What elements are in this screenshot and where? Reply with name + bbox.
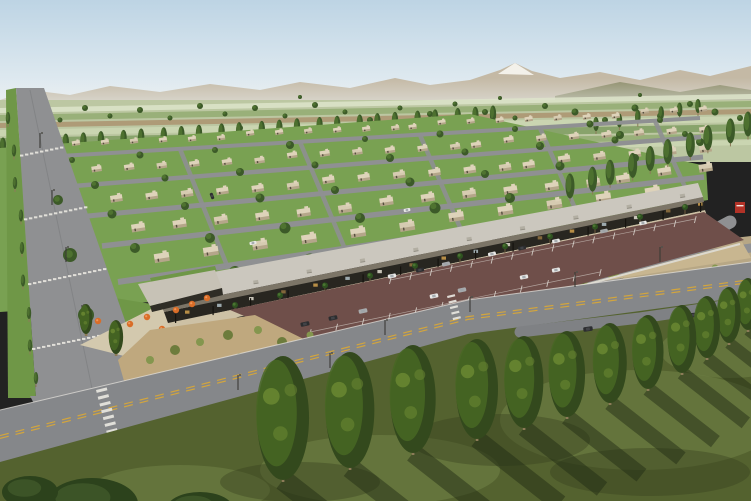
house-tower [457, 209, 462, 214]
patio-umbrella-top [145, 315, 147, 317]
house-tower [325, 149, 328, 152]
yard-tree-highlight [108, 210, 113, 215]
canopy-column [400, 266, 401, 275]
yard-tree-highlight [256, 194, 261, 199]
crosswalk-bar [63, 276, 66, 278]
foreground-tree-light [469, 396, 481, 408]
house-tower [604, 191, 609, 196]
crosswalk-bar [72, 340, 75, 342]
crosswalk-bar [74, 208, 77, 210]
field-tree-highlight [498, 96, 500, 98]
foreground-tree-light [697, 312, 705, 320]
storefront-window [570, 230, 575, 233]
field-tree-highlight [737, 115, 740, 118]
house-tower [476, 140, 479, 143]
poplar-highlight [12, 145, 15, 153]
foreground-tree-mid [548, 334, 576, 408]
palm-highlight [368, 273, 371, 276]
canopy-column [513, 243, 514, 252]
crosswalk-bar [39, 215, 42, 217]
house-tower [279, 128, 282, 131]
house-tower [470, 187, 474, 191]
field-tree-highlight [427, 111, 430, 114]
canopy-column [213, 306, 214, 315]
house-tower [260, 156, 263, 159]
house-tower [408, 219, 413, 224]
crosswalk-bar [67, 341, 70, 343]
foreground-tree-light [677, 344, 685, 352]
crosswalk-bar [69, 209, 72, 211]
field-tree-highlight [312, 102, 315, 105]
crosswalk-bar [93, 270, 96, 272]
poplar-highlight [21, 275, 24, 283]
house-door [506, 140, 508, 142]
streetlight-head [471, 296, 473, 298]
yard-tree-highlight [387, 154, 391, 158]
storefront-window [442, 257, 447, 260]
palm-highlight [638, 215, 641, 218]
palm-highlight [503, 244, 506, 247]
foreground-tree-light [351, 378, 363, 390]
field-tree-highlight [252, 105, 255, 108]
poplar-highlight [28, 340, 31, 348]
yard-tree-highlight [437, 131, 441, 135]
yard-tree-highlight [587, 121, 591, 125]
foreground-tree-light [708, 310, 714, 316]
yard-tree-highlight [482, 170, 486, 174]
foreground-tree-light [81, 312, 85, 316]
canopy-column [663, 211, 664, 220]
canopy-column [475, 251, 476, 260]
foreground-tree-light [636, 334, 646, 344]
foreground-tree-light [604, 368, 613, 377]
foreground-tree-light [331, 382, 347, 398]
house-tower [600, 151, 604, 155]
poplar-highlight [744, 113, 749, 131]
crosswalk-bar [25, 154, 28, 156]
house-tower [639, 128, 642, 131]
house-tower [387, 195, 391, 199]
house-door [190, 139, 192, 141]
crosswalk-bar [20, 155, 23, 157]
yard-tree-highlight [512, 126, 515, 129]
house-tower [195, 159, 198, 162]
house-tower [529, 115, 532, 118]
house-tower [653, 184, 658, 189]
crosswalk-bar [40, 151, 43, 153]
streetlight-head [661, 246, 663, 248]
crosswalk-bar [33, 282, 36, 284]
foreground-tree-light [396, 373, 411, 388]
house-tower [442, 118, 445, 121]
foreground-tree-light [517, 388, 528, 399]
house-tower [423, 144, 426, 147]
foreground-tree-light [560, 380, 570, 390]
house-tower [413, 123, 416, 126]
house-door [289, 156, 291, 158]
field-tree-highlight [617, 132, 621, 136]
foreground-tree-light [553, 353, 565, 365]
yard-tree-highlight [356, 214, 362, 220]
canopy-column [625, 219, 626, 228]
house-tower [346, 202, 350, 206]
house-tower [674, 106, 677, 109]
poplar-highlight [664, 140, 669, 158]
house-door [387, 151, 389, 153]
yard-tree-highlight [462, 149, 466, 153]
garden-shrub [170, 345, 180, 355]
house-tower [187, 188, 191, 192]
house-door [322, 154, 324, 156]
crosswalk-bar [50, 149, 53, 151]
house-door [393, 128, 395, 130]
foreground-tree-light [730, 300, 736, 306]
house-tower [509, 135, 512, 138]
storefront-window [217, 304, 222, 307]
foreground-tree-light [478, 361, 488, 371]
house-door [103, 143, 105, 145]
storefront-window [313, 284, 318, 287]
house-tower [635, 148, 639, 152]
storefront-window [345, 277, 350, 280]
house-tower [250, 129, 253, 132]
house-door [643, 112, 645, 114]
monument-sign-text-band [737, 205, 744, 206]
house-tower [529, 159, 533, 163]
crosswalk-bar [73, 274, 76, 276]
canopy-column [700, 203, 701, 212]
patio-umbrella-top [205, 296, 207, 298]
yard-tree-highlight [162, 175, 166, 179]
crosswalk-bar [37, 347, 40, 349]
poplar-highlight [20, 243, 23, 251]
yard-tree-highlight [212, 147, 215, 150]
poplar-highlight [34, 373, 37, 381]
patio-umbrella [189, 301, 195, 307]
yard-tree-highlight [506, 194, 512, 200]
yard-tree-highlight [612, 137, 616, 141]
field-tree-highlight [108, 114, 111, 117]
corner-canopy-highlight [8, 479, 42, 497]
palm-highlight [593, 224, 596, 227]
canopy-column [175, 314, 176, 323]
house-tower [665, 165, 669, 169]
patio-umbrella-top [190, 302, 192, 304]
crosswalk-bar [87, 337, 90, 339]
crosswalk-bar [30, 153, 33, 155]
foreground-tree-light [404, 406, 417, 419]
house-tower [359, 225, 364, 230]
crosswalk-bar [53, 278, 56, 280]
yard-tree-highlight [430, 203, 436, 209]
crosswalk-bar [60, 147, 63, 149]
house-tower [558, 114, 561, 117]
house-door [473, 146, 475, 148]
field-tree-highlight [367, 117, 370, 120]
aerial-rendering [0, 0, 751, 501]
field-tree-highlight [223, 112, 226, 115]
house-tower [364, 172, 368, 176]
storefront-window [666, 209, 671, 212]
crosswalk-bar [48, 279, 51, 281]
field-tree-highlight [298, 95, 300, 97]
house-tower [587, 113, 590, 116]
house-door [538, 139, 540, 141]
house-tower [607, 130, 610, 133]
crosswalk-bar [77, 339, 80, 341]
field-tree-highlight [168, 116, 171, 119]
foreground-tree-mid [109, 321, 120, 350]
field-tree-highlight [602, 117, 605, 120]
foreground-tree-mid [256, 360, 297, 467]
house-door [306, 132, 308, 134]
foreground-tree-mid [80, 305, 90, 331]
streetlight-head [41, 132, 43, 134]
crosswalk-bar [54, 212, 57, 214]
house-door [672, 111, 674, 113]
streetlight-head [331, 352, 333, 354]
streetlight-head [239, 374, 241, 376]
palm-highlight [323, 283, 326, 286]
monument-sign [735, 202, 745, 213]
patio-umbrella-top [128, 322, 130, 324]
patio-umbrella [173, 307, 179, 313]
field-tree-highlight [542, 103, 545, 106]
yard-tree-highlight [69, 157, 72, 160]
house-door [277, 133, 279, 135]
foreground-tree-mid [390, 348, 425, 441]
streetlight-head [53, 189, 55, 191]
foreground-tree-mid [667, 307, 689, 365]
house-tower [105, 138, 108, 141]
house-door [354, 152, 356, 154]
yard-tree-highlight [137, 152, 141, 156]
house-tower [542, 133, 545, 136]
poplar-highlight [490, 106, 494, 118]
crosswalk-bar [32, 348, 35, 350]
poplar-highlight [695, 100, 698, 110]
house-tower [263, 210, 267, 214]
crosswalk-bar [64, 210, 67, 212]
house-tower [574, 132, 577, 135]
foreground-tree-light [525, 357, 534, 366]
storefront-window [249, 297, 254, 300]
palm-highlight [278, 293, 281, 296]
house-tower [227, 157, 230, 160]
house-door [248, 134, 250, 136]
house-tower [456, 142, 459, 145]
house-tower [672, 126, 675, 129]
house-door [224, 163, 226, 165]
foreground-tree-light [285, 384, 297, 396]
foreground-tree-light [702, 331, 709, 338]
field-tree-highlight [398, 106, 401, 109]
house-door [526, 120, 528, 122]
house-tower [366, 125, 369, 128]
foreground-tree-mid [504, 339, 534, 418]
house-door [452, 147, 454, 149]
house-tower [329, 174, 333, 178]
patio-umbrella [95, 318, 101, 324]
foreground-tree-light [568, 350, 577, 359]
poplar-highlight [27, 308, 30, 316]
yard-tree-highlight [131, 244, 137, 250]
median-tree-highlight [54, 196, 60, 202]
storefront-window [185, 311, 190, 314]
poplar-highlight [635, 111, 638, 121]
streetlight-head [576, 271, 578, 273]
yard-tree-highlight [287, 141, 291, 145]
crosswalk-bar [83, 272, 86, 274]
foreground-tree-light [116, 328, 119, 331]
poplar-highlight [726, 120, 731, 138]
foreground-tree-light [113, 339, 117, 343]
poplar-highlight [646, 147, 651, 165]
house-tower [211, 244, 216, 249]
foreground-tree-light [611, 341, 619, 349]
palm-highlight [548, 234, 551, 237]
house-door [669, 132, 671, 134]
house-tower [192, 135, 195, 138]
foreground-tree-mid [694, 298, 714, 351]
foreground-tree-light [509, 360, 521, 372]
house-door [74, 144, 76, 146]
crosswalk-bar [78, 273, 81, 275]
foreground-tree-light [740, 291, 747, 298]
poplar-highlight [589, 168, 594, 186]
house-tower [258, 183, 262, 187]
yard-tree-highlight [406, 178, 411, 183]
house-tower [130, 162, 133, 165]
foreground-tree-light [414, 369, 425, 380]
house-tower [470, 164, 474, 168]
foreground-tree-light [744, 307, 750, 313]
foreground-tree-light [84, 321, 88, 325]
crosswalk-bar [35, 152, 38, 154]
crosswalk-bar [55, 148, 58, 150]
house-tower [555, 197, 560, 202]
house-door [161, 140, 163, 142]
patio-umbrella-top [96, 319, 98, 321]
yard-tree-highlight [237, 168, 241, 172]
storefront-window [377, 270, 382, 273]
foreground-tree-light [597, 344, 608, 355]
house-tower [223, 185, 227, 189]
crosswalk-bar [68, 275, 71, 277]
house-door [614, 116, 616, 118]
house-door [636, 134, 638, 136]
house-door [497, 121, 499, 123]
house-tower [162, 250, 167, 255]
house-door [468, 122, 470, 124]
foreground-tree-light [683, 320, 690, 327]
house-tower [471, 117, 474, 120]
patio-umbrella [127, 321, 133, 327]
crosswalk-bar [103, 268, 106, 270]
poplar-highlight [13, 178, 16, 186]
palm-highlight [233, 303, 236, 306]
crosswalk-bar [38, 281, 41, 283]
crosswalk-bar [98, 269, 101, 271]
palm-highlight [413, 264, 416, 267]
crosswalk-bar [45, 150, 48, 152]
crosswalk-bar [34, 216, 37, 218]
yard-tree-highlight [312, 162, 316, 166]
patio-umbrella [144, 314, 150, 320]
foreground-tree-light [273, 426, 288, 441]
house-tower [134, 137, 137, 140]
house-tower [139, 221, 143, 225]
house-door [410, 127, 412, 129]
yard-tree-highlight [280, 223, 286, 229]
yard-tree-highlight [206, 234, 212, 240]
field-tree-highlight [283, 114, 286, 117]
canopy-column [288, 290, 289, 299]
crosswalk-bar [57, 343, 60, 345]
house-tower [552, 180, 556, 184]
poplar-highlight [606, 161, 611, 179]
house [698, 161, 713, 173]
foreground-tree-light [461, 365, 474, 378]
house-tower [506, 162, 510, 166]
palm-highlight [458, 254, 461, 257]
house-tower [180, 217, 184, 221]
yard-tree-highlight [92, 181, 96, 185]
poplar-highlight [659, 107, 662, 117]
crosswalk-bar [84, 206, 87, 208]
poplar-highlight [704, 127, 709, 145]
field-tree-highlight [137, 107, 140, 110]
house-tower [221, 213, 225, 217]
house-door [257, 161, 259, 163]
foreground-tree-light [649, 332, 656, 339]
house-door [364, 129, 366, 131]
foreground-tree-mid [632, 317, 656, 381]
storefront-window [538, 236, 543, 239]
foreground-tree-light [720, 301, 728, 309]
foreground-tree-light [86, 311, 89, 314]
crosswalk-bar [82, 338, 85, 340]
house-tower [703, 105, 706, 108]
storefront-window [602, 223, 607, 226]
field-tree-highlight [453, 102, 456, 105]
house-tower [400, 169, 404, 173]
house-tower [117, 193, 121, 197]
house-tower [260, 238, 265, 243]
canopy-column [588, 227, 589, 236]
house-door [701, 130, 703, 132]
poplar-highlight [19, 210, 22, 218]
house-tower [500, 116, 503, 119]
crosswalk-bar [44, 214, 47, 216]
house-tower [390, 145, 393, 148]
patio-umbrella [204, 295, 210, 301]
house-tower [152, 190, 156, 194]
house-tower [163, 136, 166, 139]
yard-tree-highlight [682, 131, 685, 134]
crosswalk-bar [88, 271, 91, 273]
field-tree-highlight [513, 116, 516, 119]
crosswalk-bar [62, 342, 65, 344]
house-door [555, 119, 557, 121]
canopy-column [438, 259, 439, 268]
house-door [191, 164, 193, 166]
crosswalk-bar [49, 213, 52, 215]
house-tower [435, 167, 439, 171]
foreground-tree-light [263, 388, 280, 405]
garden-shrub [254, 326, 262, 334]
crosswalk-bar [24, 218, 27, 220]
